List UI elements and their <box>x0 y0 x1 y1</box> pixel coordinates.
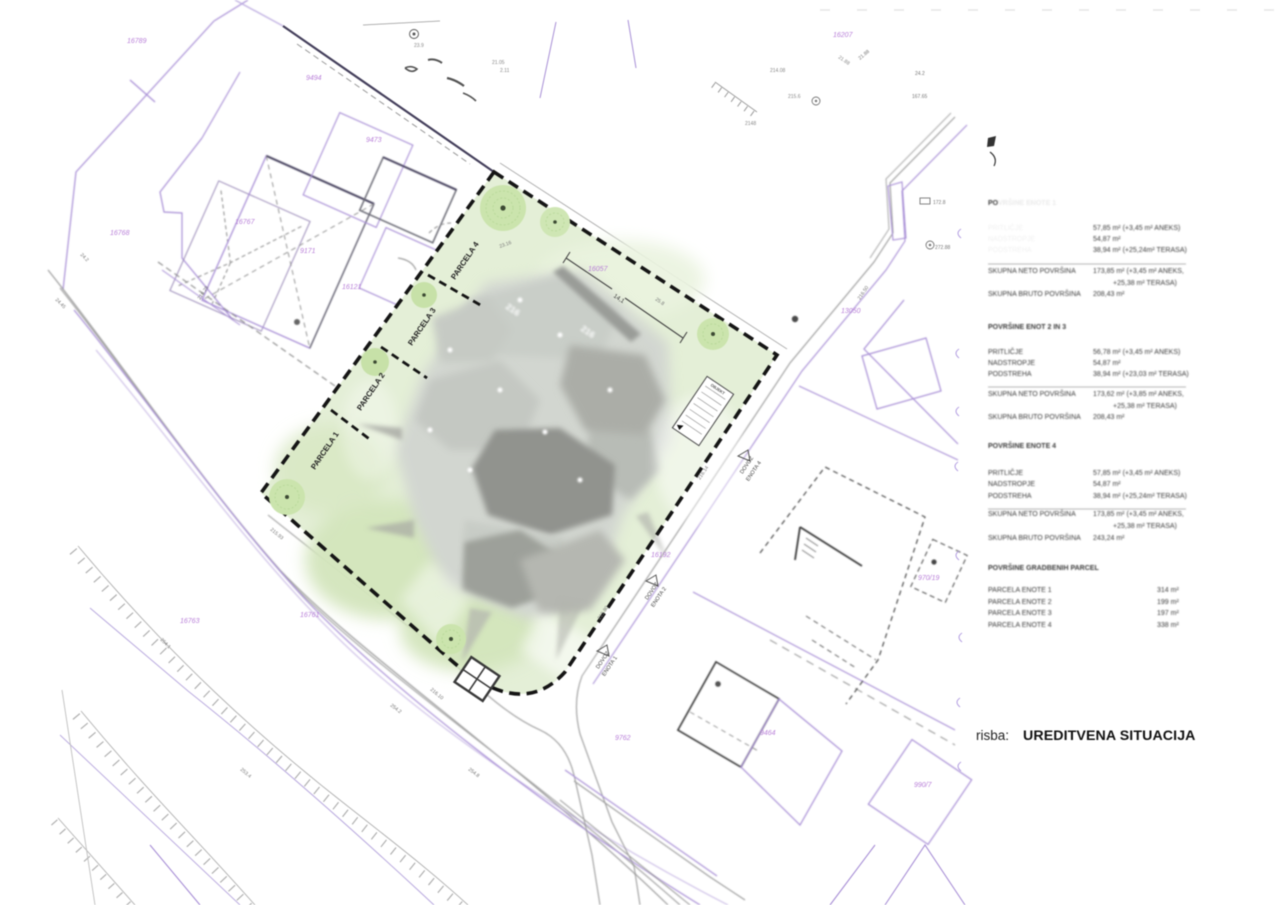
svg-text:POVRŠINE ENOT 2 IN 3: POVRŠINE ENOT 2 IN 3 <box>988 322 1066 331</box>
svg-text:16763: 16763 <box>180 618 200 625</box>
svg-text:199 m²: 199 m² <box>1157 599 1179 606</box>
svg-text:+25,38 m² TERASA): +25,38 m² TERASA) <box>1113 523 1177 530</box>
svg-text:16057: 16057 <box>588 266 609 273</box>
svg-text:54,87 m²: 54,87 m² <box>1093 236 1121 243</box>
svg-text:54,87 m²: 54,87 m² <box>1093 481 1121 488</box>
svg-text:PARCELA ENOTE 3: PARCELA ENOTE 3 <box>988 610 1052 617</box>
svg-text:POVRŠINE ENOTE 4: POVRŠINE ENOTE 4 <box>988 441 1056 450</box>
svg-text:214.08: 214.08 <box>770 68 786 74</box>
svg-text:167.65: 167.65 <box>912 94 928 100</box>
svg-text:SKUPNA NETO POVRŠINA: SKUPNA NETO POVRŠINA <box>988 266 1076 275</box>
svg-text:338 m²: 338 m² <box>1157 622 1179 629</box>
svg-text:208,43 m²: 208,43 m² <box>1093 414 1125 421</box>
svg-text:970/19: 970/19 <box>918 575 940 582</box>
svg-text:PRITLIČJE: PRITLIČJE <box>988 223 1023 232</box>
svg-text:2148: 2148 <box>745 121 756 127</box>
svg-text:9494: 9494 <box>306 75 322 82</box>
svg-text:173,85 m² (+3,45 m² ANEKS,: 173,85 m² (+3,45 m² ANEKS, <box>1093 268 1184 275</box>
svg-text:NADSTROPJE: NADSTROPJE <box>988 481 1035 488</box>
svg-text:57,85 m² (+3,45 m² ANEKS): 57,85 m² (+3,45 m² ANEKS) <box>1093 225 1180 232</box>
svg-text:16789: 16789 <box>127 38 147 45</box>
svg-text:208,43 m²: 208,43 m² <box>1093 291 1125 298</box>
svg-text:UREDITVENA SITUACIJA: UREDITVENA SITUACIJA <box>1023 728 1196 744</box>
svg-text:PRITLIČJE: PRITLIČJE <box>988 347 1023 356</box>
svg-text:16768: 16768 <box>110 230 130 237</box>
svg-text:54,87 m²: 54,87 m² <box>1093 360 1121 367</box>
svg-text:PRITLIČJE: PRITLIČJE <box>988 468 1023 477</box>
svg-text:16121: 16121 <box>342 284 362 291</box>
svg-text:PARCELA ENOTE 4: PARCELA ENOTE 4 <box>988 622 1052 629</box>
svg-text:215.6: 215.6 <box>788 94 801 100</box>
svg-text:16767: 16767 <box>235 219 256 226</box>
svg-text:16192: 16192 <box>651 552 671 559</box>
svg-text:197 m²: 197 m² <box>1157 610 1179 617</box>
svg-text:POVRŠINE GRADBENIH PARCEL: POVRŠINE GRADBENIH PARCEL <box>988 563 1099 572</box>
svg-text:SKUPNA BRUTO POVRŠINA: SKUPNA BRUTO POVRŠINA <box>988 412 1081 421</box>
svg-text:PODSTREHA: PODSTREHA <box>988 493 1032 500</box>
svg-text:9171: 9171 <box>300 248 316 255</box>
svg-text:23.9: 23.9 <box>414 43 424 49</box>
svg-text:21.05: 21.05 <box>492 60 505 66</box>
svg-text:990/7: 990/7 <box>914 782 933 789</box>
svg-text:13050: 13050 <box>841 308 861 315</box>
svg-text:173,62 m² (+3,85 m² ANEKS,: 173,62 m² (+3,85 m² ANEKS, <box>1093 391 1184 398</box>
svg-text:16761: 16761 <box>300 612 320 619</box>
svg-text:314 m²: 314 m² <box>1157 587 1179 594</box>
svg-text:38,94 m² (+25,24m² TERASA): 38,94 m² (+25,24m² TERASA) <box>1093 493 1187 500</box>
svg-text:PODSTREHA: PODSTREHA <box>988 247 1032 254</box>
svg-text:POVRŠINE ENOTE 1: POVRŠINE ENOTE 1 <box>988 198 1056 207</box>
svg-text:NADSTROPJE: NADSTROPJE <box>988 236 1035 243</box>
svg-text:+25,38 m² TERASA): +25,38 m² TERASA) <box>1113 280 1177 287</box>
svg-text:PARCELA ENOTE 2: PARCELA ENOTE 2 <box>988 599 1052 606</box>
svg-text:56,78 m² (+3,45 m² ANEKS): 56,78 m² (+3,45 m² ANEKS) <box>1093 349 1180 356</box>
svg-text:24.2: 24.2 <box>915 71 925 77</box>
svg-text:2.11: 2.11 <box>500 68 510 74</box>
svg-text:272.88: 272.88 <box>935 245 951 251</box>
svg-text:38,94 m² (+23,03 m² TERASA): 38,94 m² (+23,03 m² TERASA) <box>1093 371 1189 378</box>
svg-text:16207: 16207 <box>833 32 854 39</box>
svg-text:9762: 9762 <box>615 735 631 742</box>
svg-text:SKUPNA BRUTO POVRŠINA: SKUPNA BRUTO POVRŠINA <box>988 289 1081 298</box>
svg-text:SKUPNA NETO POVRŠINA: SKUPNA NETO POVRŠINA <box>988 509 1076 518</box>
svg-text:9473: 9473 <box>366 137 382 144</box>
svg-text:risba:: risba: <box>976 728 1009 743</box>
svg-text:38,94 m² (+25,24m² TERASA): 38,94 m² (+25,24m² TERASA) <box>1093 247 1187 254</box>
svg-text:SKUPNA NETO POVRŠINA: SKUPNA NETO POVRŠINA <box>988 389 1076 398</box>
svg-text:9464: 9464 <box>760 730 776 737</box>
svg-text:NADSTROPJE: NADSTROPJE <box>988 360 1035 367</box>
svg-text:SKUPNA BRUTO POVRŠINA: SKUPNA BRUTO POVRŠINA <box>988 533 1081 542</box>
svg-text:PARCELA ENOTE 1: PARCELA ENOTE 1 <box>988 587 1052 594</box>
svg-text:173,85 m² (+3,45 m² ANEKS,: 173,85 m² (+3,45 m² ANEKS, <box>1093 511 1184 518</box>
svg-text:+25,38 m² TERASA): +25,38 m² TERASA) <box>1113 403 1177 410</box>
svg-text:243,24 m²: 243,24 m² <box>1093 535 1125 542</box>
svg-text:57,85 m² (+3,45 m² ANEKS): 57,85 m² (+3,45 m² ANEKS) <box>1093 470 1180 477</box>
svg-text:PODSTREHA: PODSTREHA <box>988 371 1032 378</box>
svg-text:172.8: 172.8 <box>933 200 946 206</box>
